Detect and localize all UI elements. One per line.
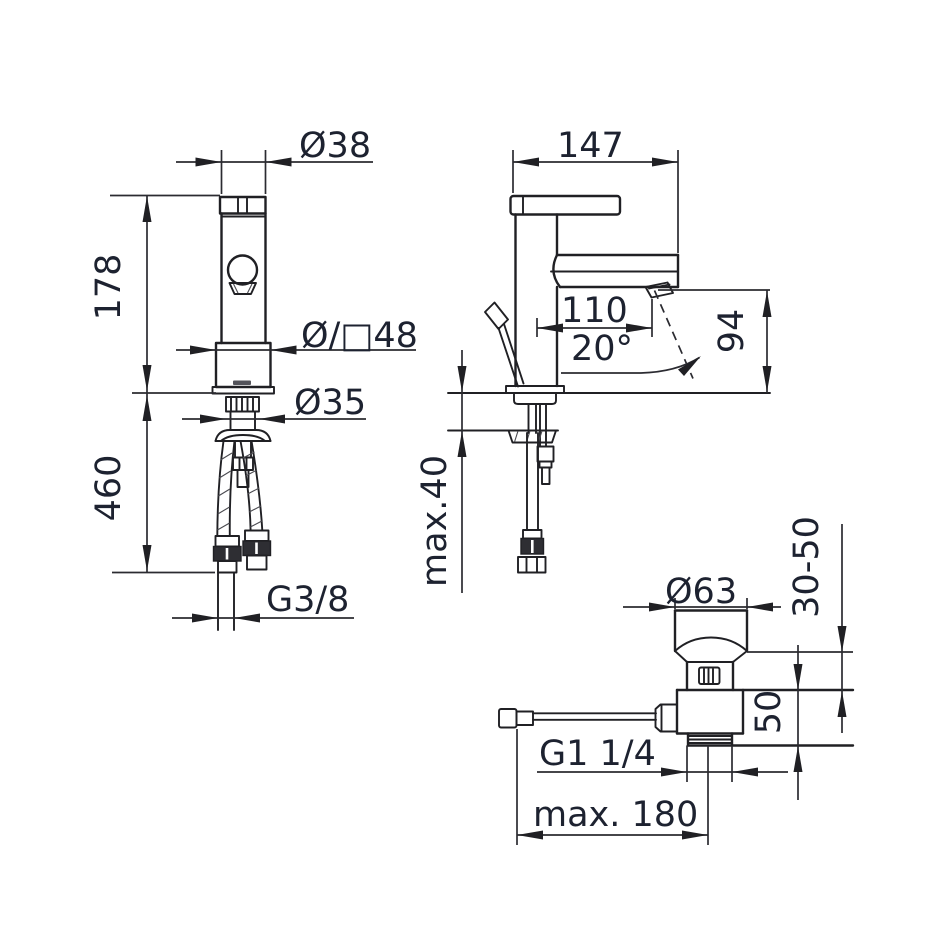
dim-front-shank-diameter: Ø35 <box>294 383 366 423</box>
dim-front-spout-diameter: Ø38 <box>299 126 371 166</box>
dim-side-spout-angle: 20° <box>571 329 633 369</box>
front-lever-knob <box>228 256 257 285</box>
dim-front-height-above-deck: 178 <box>89 254 129 321</box>
rod-port <box>656 705 678 732</box>
side-hose-nut <box>518 557 546 573</box>
dim-drain-deck-range: 30-50 <box>787 516 827 618</box>
side-flange <box>514 393 556 404</box>
dim-side-depth: 147 <box>557 126 624 166</box>
dim-side-deck-thickness-max: max.40 <box>415 455 455 587</box>
dim-front-supply-thread: G3/8 <box>266 580 349 620</box>
dim-front-height-below-deck: 460 <box>89 455 129 522</box>
mounting-bracket <box>509 431 557 443</box>
dim-side-outlet-height: 94 <box>712 309 752 354</box>
side-view: 147 110 20° 94 max.40 <box>415 126 772 593</box>
dim-drain-rod-length: max. 180 <box>533 795 698 835</box>
front-handle <box>220 197 266 214</box>
dim-side-spout-reach: 110 <box>561 291 628 331</box>
side-lever-handle <box>511 196 621 215</box>
drain-assembly-view: Ø63 30-50 50 G1 1/4 max. 180 <box>499 516 853 845</box>
brand-mark <box>233 381 251 386</box>
technical-drawing-page: Ø38 178 460 Ø/□48 Ø35 G3/8 <box>0 0 950 950</box>
dim-drain-below-deck: 50 <box>749 690 789 735</box>
rod-end-knob <box>499 709 517 728</box>
supply-hose-right <box>252 441 263 531</box>
dim-drain-waste-thread: G1 1/4 <box>539 734 656 774</box>
front-view: Ø38 178 460 Ø/□48 Ø35 G3/8 <box>89 126 418 630</box>
dim-drain-plug-diameter: Ø63 <box>665 572 737 612</box>
dim-front-body-width: Ø/□48 <box>301 316 418 356</box>
faucet-technical-drawing: Ø38 178 460 Ø/□48 Ø35 G3/8 <box>0 0 950 950</box>
supply-hose-left <box>217 441 223 536</box>
